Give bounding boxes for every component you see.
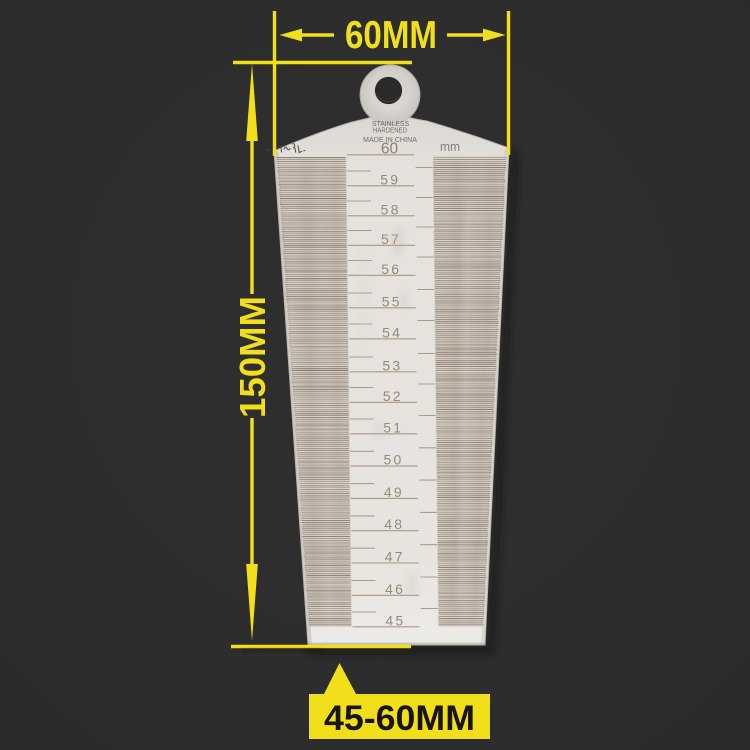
svg-text:48: 48 [384,516,404,532]
svg-text:51: 51 [383,419,403,435]
svg-text:MADE IN CHINA: MADE IN CHINA [363,135,417,144]
svg-text:49: 49 [384,484,404,500]
svg-text:54: 54 [382,324,402,340]
svg-text:150MM: 150MM [232,296,273,418]
svg-text:52: 52 [383,388,403,404]
svg-text:45: 45 [385,612,405,628]
svg-text:mm: mm [440,139,460,154]
svg-text:HARDENED: HARDENED [373,128,407,135]
svg-text:50: 50 [384,452,404,468]
svg-text:55: 55 [382,293,402,309]
svg-text:60MM: 60MM [345,14,437,57]
svg-text:59: 59 [380,171,400,187]
svg-text:46: 46 [385,581,405,597]
svg-text:58: 58 [381,201,401,217]
svg-text:47: 47 [385,549,405,565]
svg-text:45-60MM: 45-60MM [324,699,475,738]
svg-text:56: 56 [381,261,401,277]
svg-text:53: 53 [382,357,402,373]
